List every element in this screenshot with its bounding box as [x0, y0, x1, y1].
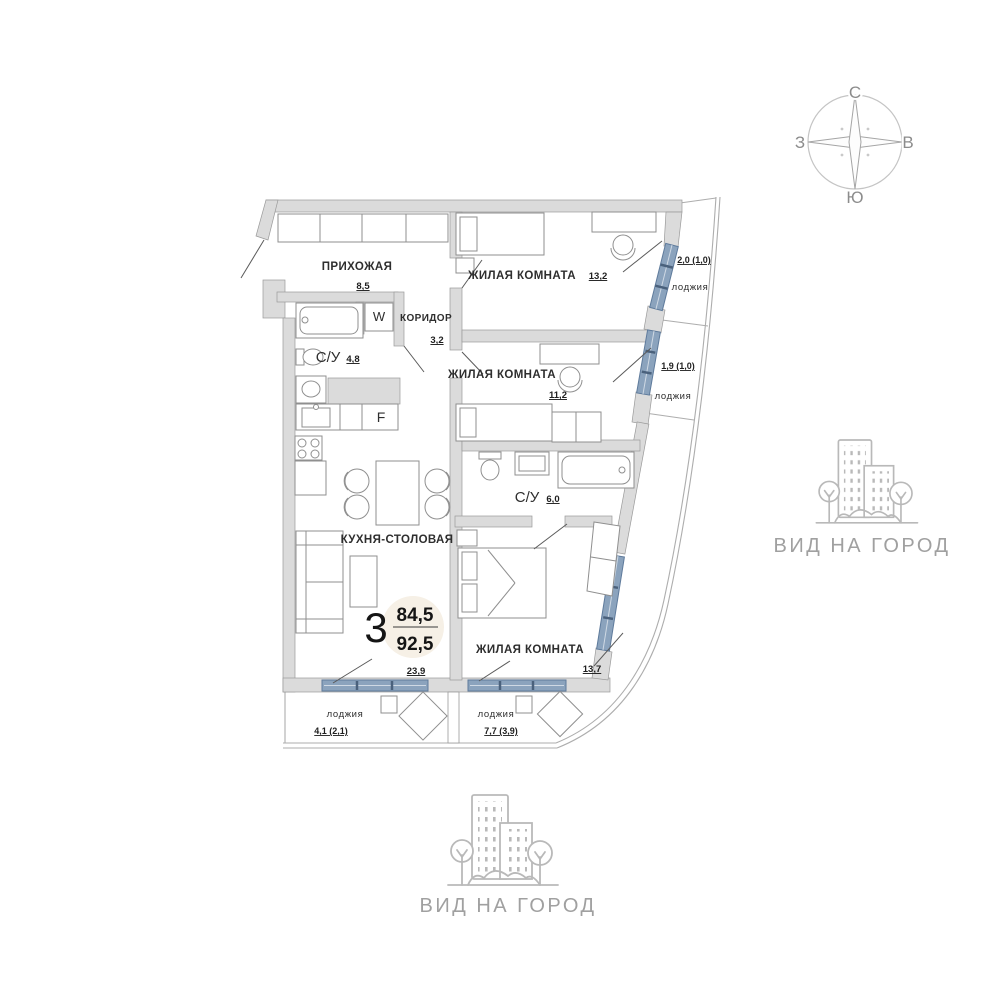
loggia-table-left: [381, 696, 397, 713]
wall-bedroom1-bedroom2: [462, 330, 648, 342]
bathtub-bathroom2: [558, 452, 634, 488]
compass-dot: [867, 128, 870, 131]
wall-bathroom1-kitchen: [328, 378, 400, 404]
compass-dot: [841, 154, 844, 157]
loggia-lounge-right: [537, 691, 582, 736]
label-fridge: F: [377, 409, 386, 425]
compass-north: С: [849, 83, 861, 102]
wall-left: [283, 318, 295, 692]
label-loggia-middle: лоджия: [655, 391, 692, 402]
city-view-bottom-label: ВИД НА ГОРОД: [420, 895, 597, 917]
loggia-table-right: [516, 696, 532, 713]
area-bathroom1: 4,8: [346, 354, 359, 365]
city-icon: [448, 795, 558, 885]
label-bathroom1: С/У: [316, 349, 341, 366]
stove: [295, 436, 322, 460]
desk-bedroom1: [592, 212, 656, 232]
label-loggia-top: лоджия: [672, 282, 709, 293]
label-corridor: КОРИДОР: [400, 313, 452, 324]
compass-dot: [841, 128, 844, 131]
compass-east: В: [902, 133, 913, 152]
label-bedroom3: ЖИЛАЯ КОМНАТА: [475, 644, 584, 656]
area-loggia-bottom-right: 7,7 (3,9): [484, 726, 518, 736]
area-hallway: 8,5: [356, 281, 370, 292]
badge-total-area: 92,5: [397, 634, 434, 655]
label-bathroom2: С/У: [515, 489, 540, 506]
label-hallway: ПРИХОЖАЯ: [322, 261, 393, 273]
city-view-right-label: ВИД НА ГОРОД: [774, 535, 951, 557]
wall-bathroom2-bedroom3-left: [455, 516, 532, 527]
compass-south: Ю: [846, 188, 863, 207]
bed-bedroom2: [456, 404, 552, 441]
wardrobe-bedroom2: [552, 412, 601, 442]
city-view-right: ВИД НА ГОРОД: [774, 440, 951, 557]
label-washer: W: [373, 309, 386, 324]
area-loggia-top: 2,0 (1,0): [677, 255, 711, 265]
window-loggia-top: [650, 243, 679, 310]
sofa: [296, 531, 343, 633]
label-bedroom1: ЖИЛАЯ КОМНАТА: [467, 270, 576, 282]
floorplan-page: ПРИХОЖАЯ 8,5 ЖИЛАЯ КОМНАТА 13,2 КОРИДОР …: [0, 0, 1000, 1000]
kitchen-cabinet: [295, 461, 326, 495]
desk-bedroom2: [540, 344, 599, 364]
label-loggia-bottom-left: лоджия: [327, 709, 364, 720]
toilet-bathroom2: [479, 452, 501, 480]
compass-dot: [867, 154, 870, 157]
coffee-table: [350, 556, 377, 607]
compass-star-ns: [849, 95, 861, 189]
wall-top: [266, 200, 682, 212]
label-bedroom2: ЖИЛАЯ КОМНАТА: [447, 369, 556, 381]
area-corridor: 3,2: [430, 335, 443, 346]
wall-entrance-corner: [256, 200, 278, 240]
area-badge: 3 84,5 92,5: [364, 596, 444, 658]
bed-bedroom3: [458, 548, 546, 618]
badge-living-area: 84,5: [397, 605, 434, 626]
badge-room-count: 3: [364, 604, 387, 651]
area-bedroom1: 13,2: [589, 271, 608, 282]
area-bedroom3: 13,7: [583, 664, 602, 675]
floorplan-svg: ПРИХОЖАЯ 8,5 ЖИЛАЯ КОМНАТА 13,2 КОРИДОР …: [0, 0, 1000, 1000]
label-loggia-bottom-right: лоджия: [478, 709, 515, 720]
window-loggia-bottom-left: [322, 680, 428, 691]
chair-bedroom1: [611, 235, 635, 260]
door-swing-bedroom3: [534, 524, 567, 549]
shelf-bedroom3: [457, 530, 477, 546]
wall-hallway-bathroom: [277, 292, 398, 302]
city-view-bottom: ВИД НА ГОРОД: [420, 795, 597, 917]
window-loggia-bottom-right: [468, 680, 566, 691]
dining-table: [376, 461, 419, 525]
area-kitchen: 23,9: [407, 666, 426, 677]
area-loggia-middle: 1,9 (1,0): [661, 361, 695, 371]
area-loggia-bottom-left: 4,1 (2,1): [314, 726, 348, 736]
loggia-divider-wall: [448, 692, 459, 743]
wall-bedroom2-bathroom2: [462, 440, 640, 451]
sink-bathroom1: [296, 376, 326, 403]
area-bedroom2: 11,2: [549, 390, 567, 401]
wardrobe-hallway: [278, 214, 448, 242]
city-icon: [816, 440, 917, 523]
wall-corner-top-right: [664, 212, 682, 247]
compass-rose: С Ю В З: [795, 83, 914, 207]
compass-west: З: [795, 133, 805, 152]
area-bathroom2: 6,0: [546, 494, 559, 505]
door-swing-bathroom1: [404, 346, 424, 372]
sink-bathroom2: [515, 452, 549, 475]
chair-bedroom2: [558, 367, 582, 392]
bathtub-bathroom1: [296, 303, 363, 338]
label-kitchen: КУХНЯ-СТОЛОВАЯ: [341, 534, 454, 546]
bed-bedroom1: [456, 213, 544, 255]
loggia-lounge-left: [399, 692, 447, 740]
wall-pier-2: [632, 392, 652, 425]
door-swing-entrance: [241, 240, 264, 278]
